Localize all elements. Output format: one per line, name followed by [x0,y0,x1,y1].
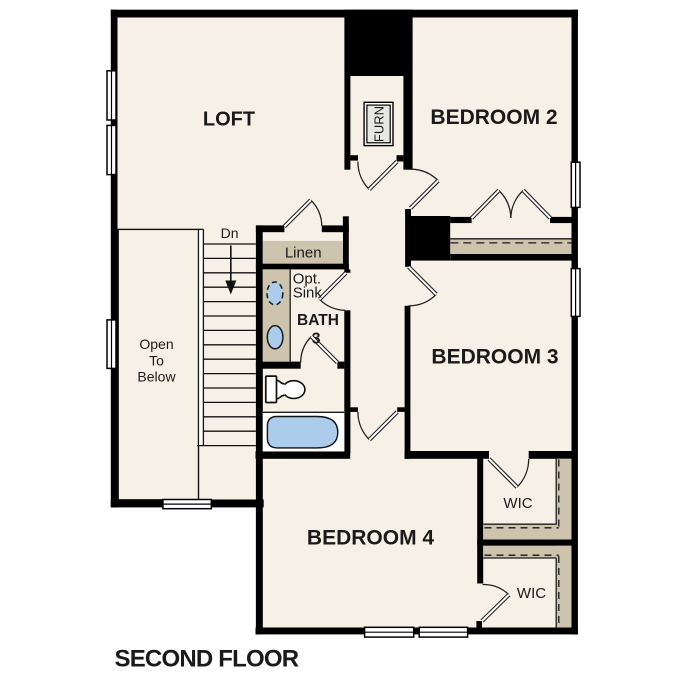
svg-text:BEDROOM 4: BEDROOM 4 [307,526,435,549]
svg-text:WIC: WIC [517,585,546,602]
svg-text:3: 3 [312,330,321,347]
svg-text:To: To [149,352,164,368]
svg-text:WIC: WIC [503,495,532,512]
svg-text:BATH: BATH [297,312,339,329]
svg-text:SECOND FLOOR: SECOND FLOOR [115,646,299,673]
svg-text:BEDROOM 2: BEDROOM 2 [430,106,557,129]
svg-text:LOFT: LOFT [203,109,255,131]
svg-text:Dn: Dn [221,225,239,241]
svg-text:FURN: FURN [371,106,386,142]
svg-text:BEDROOM 3: BEDROOM 3 [431,345,558,368]
svg-text:Linen: Linen [285,245,322,262]
svg-text:Below: Below [137,368,176,384]
svg-text:Open: Open [139,336,173,352]
svg-text:Sink: Sink [293,285,323,302]
